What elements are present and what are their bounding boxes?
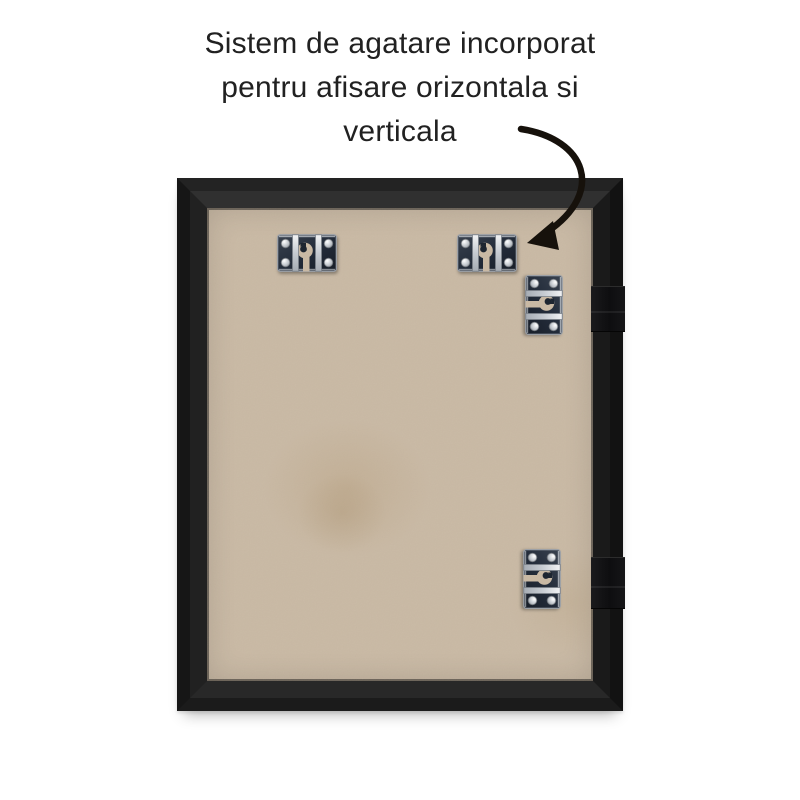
frame-edge-clip-bottom [591, 557, 625, 609]
caption-line-1: Sistem de agatare incorporat [0, 22, 800, 66]
picture-frame-back [177, 178, 623, 711]
keyhole-hanger-vertical-top [525, 275, 563, 335]
product-photo-frame-back: Sistem de agatare incorporat pentru afis… [0, 0, 800, 800]
keyhole-hanger-vertical-bottom [523, 549, 561, 609]
keyhole-hanger-horizontal-right [457, 234, 517, 272]
frame-edge-clip-top [591, 286, 625, 332]
keyhole-hanger-horizontal-left [277, 234, 337, 272]
caption: Sistem de agatare incorporat pentru afis… [0, 22, 800, 154]
clip-seam [591, 586, 625, 588]
caption-line-2: pentru afisare orizontala si [0, 66, 800, 110]
clip-seam [591, 311, 625, 313]
board-stain [262, 418, 432, 558]
caption-line-3: verticala [0, 110, 800, 154]
board-stain [297, 473, 387, 553]
frame-inner-moulding [190, 191, 610, 698]
